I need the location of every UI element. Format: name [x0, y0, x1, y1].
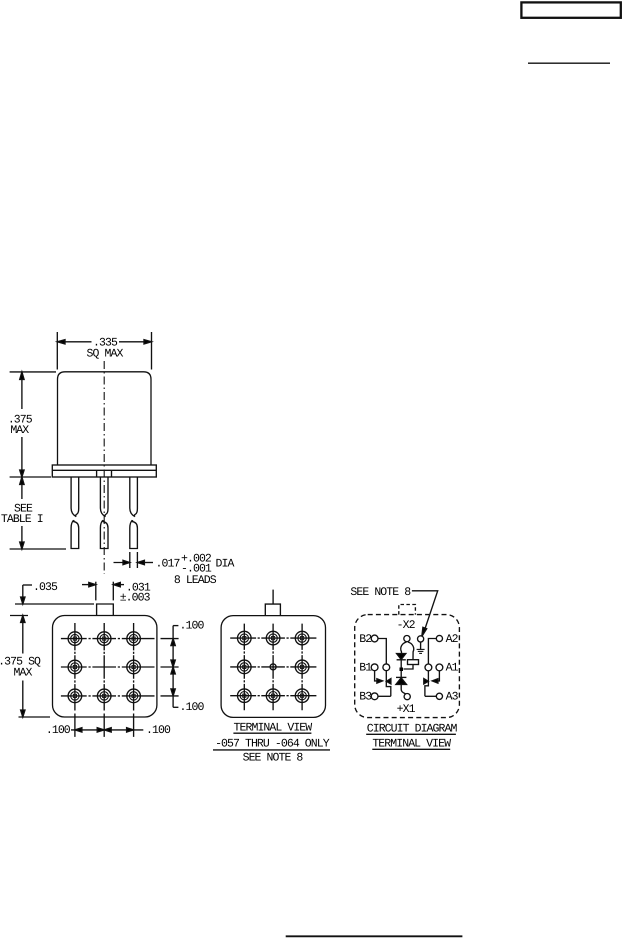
svg-text:.100: .100: [146, 724, 171, 737]
svg-text:CIRCUIT DIAGRAM: CIRCUIT DIAGRAM: [367, 723, 458, 736]
svg-text:DIA: DIA: [216, 557, 235, 570]
svg-text:TERMINAL VIEW: TERMINAL VIEW: [234, 721, 313, 734]
svg-text:-057 THRU -064 ONLY: -057 THRU -064 ONLY: [215, 738, 330, 751]
svg-text:TERMINAL VIEW: TERMINAL VIEW: [372, 737, 451, 750]
svg-text:.100: .100: [180, 620, 205, 633]
svg-text:B2: B2: [359, 633, 372, 646]
svg-text:-X2: -X2: [397, 619, 416, 632]
svg-text:.100: .100: [180, 701, 205, 714]
svg-text:8 LEADS: 8 LEADS: [174, 574, 217, 587]
svg-text:.017: .017: [156, 557, 180, 570]
svg-text:SEE NOTE 8: SEE NOTE 8: [350, 586, 411, 599]
svg-text:A3: A3: [446, 691, 459, 704]
svg-text:A1: A1: [446, 662, 459, 675]
svg-text:.100: .100: [46, 724, 71, 737]
svg-text:.035: .035: [33, 581, 58, 594]
svg-text:SEE NOTE 8: SEE NOTE 8: [243, 752, 304, 765]
svg-text:MAX: MAX: [10, 424, 29, 437]
svg-text:A2: A2: [446, 633, 459, 646]
svg-text:SQ MAX: SQ MAX: [87, 347, 124, 360]
svg-text:B3: B3: [359, 691, 372, 704]
svg-text:+X1: +X1: [397, 703, 416, 716]
svg-text:TABLE I: TABLE I: [1, 513, 43, 526]
svg-text:±.003: ±.003: [120, 591, 151, 604]
svg-text:B1: B1: [359, 662, 372, 675]
svg-text:MAX: MAX: [14, 666, 33, 679]
